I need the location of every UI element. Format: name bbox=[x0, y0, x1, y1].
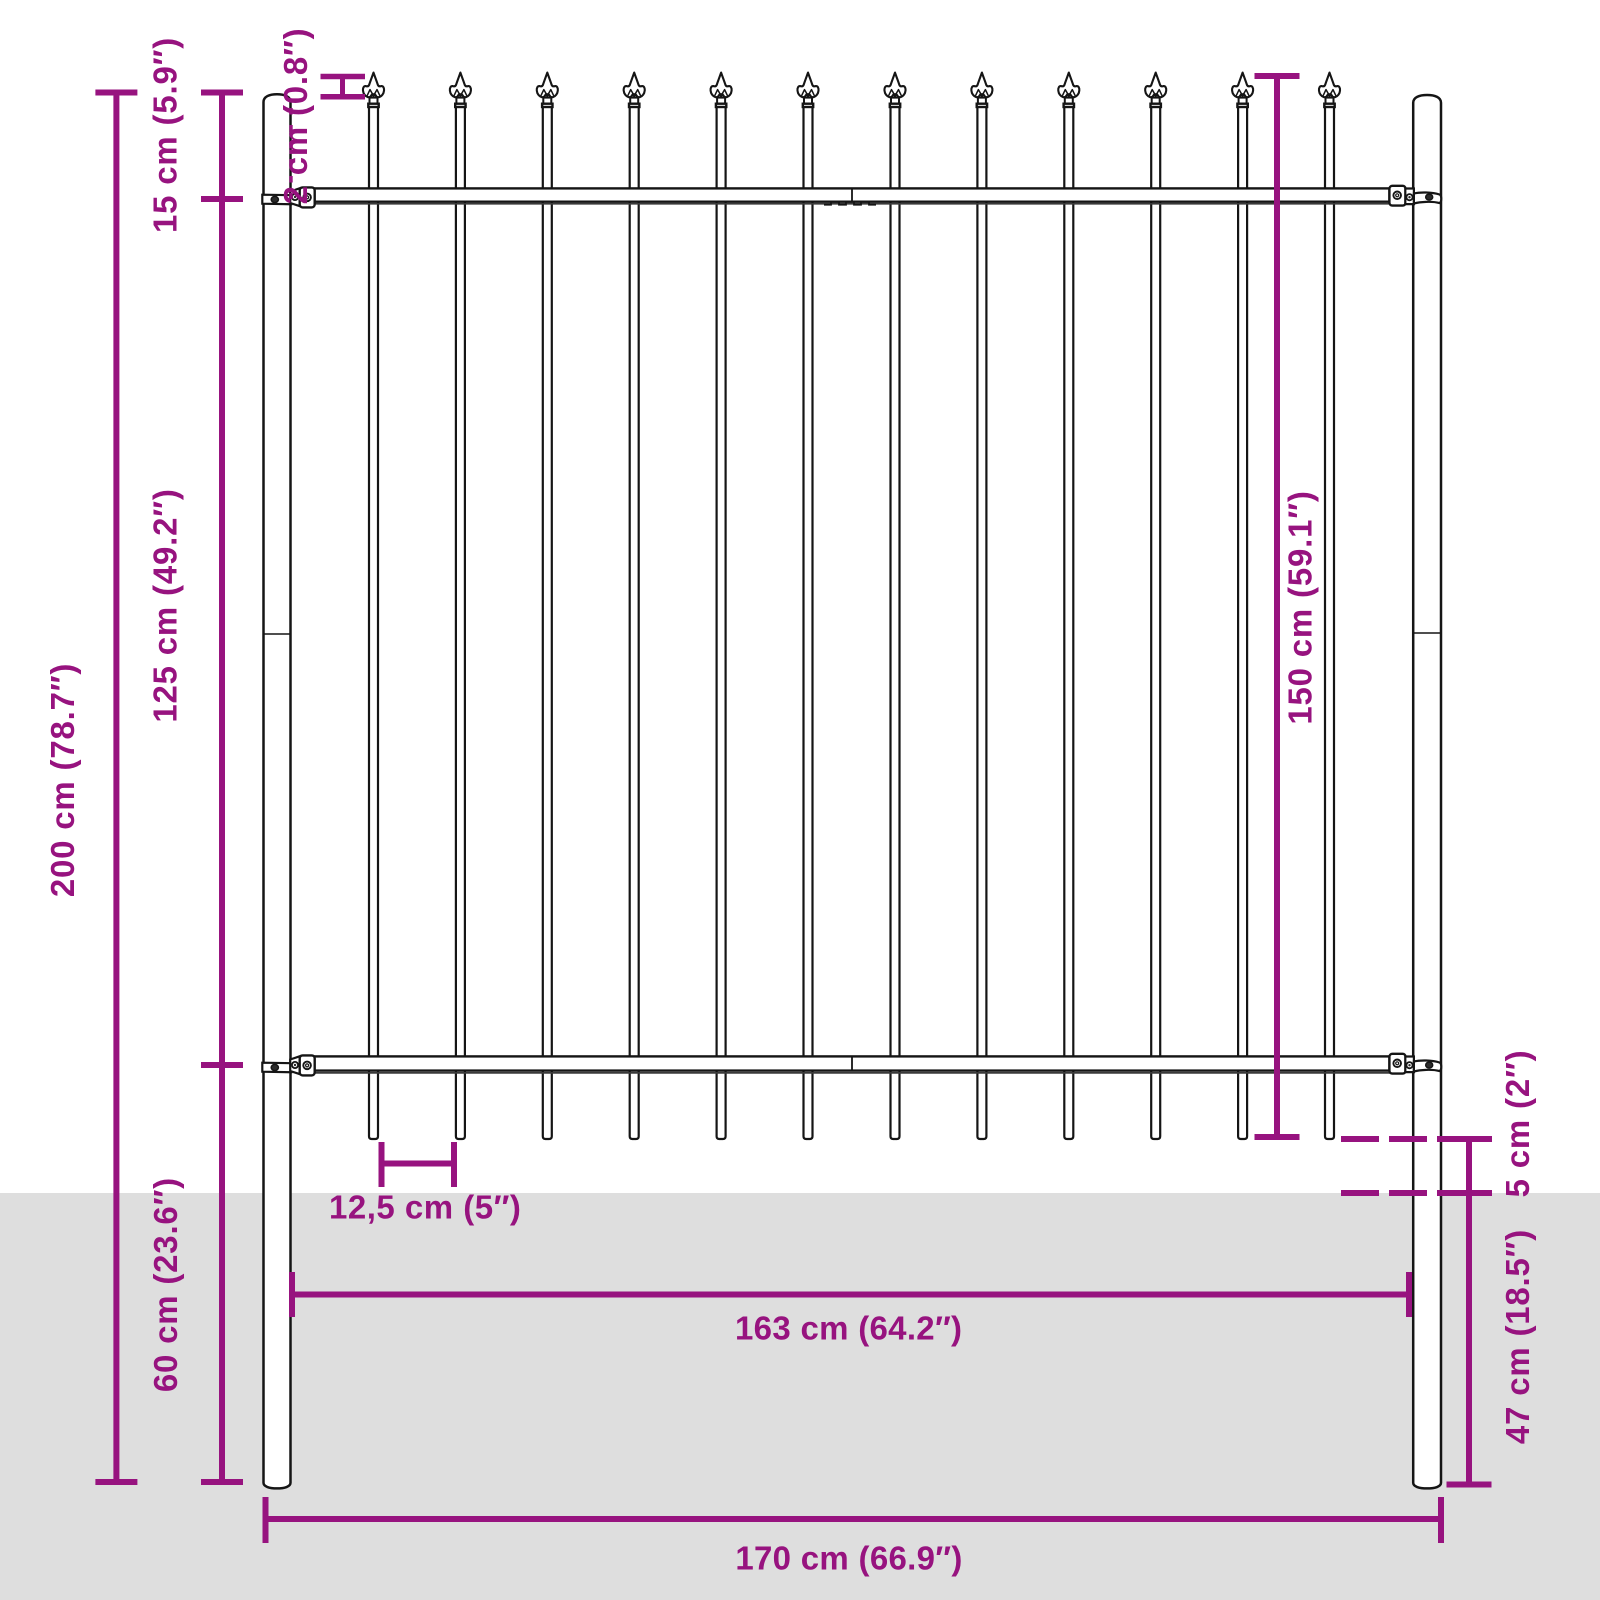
svg-text:163 cm (64.2″): 163 cm (64.2″) bbox=[735, 1310, 962, 1347]
svg-text:125 cm (49.2″): 125 cm (49.2″) bbox=[147, 488, 184, 722]
svg-text:5 cm (2″): 5 cm (2″) bbox=[1499, 1050, 1536, 1198]
svg-text:47 cm (18.5″): 47 cm (18.5″) bbox=[1499, 1229, 1536, 1444]
svg-text:12,5 cm (5″): 12,5 cm (5″) bbox=[329, 1189, 521, 1226]
svg-text:150 cm (59.1″): 150 cm (59.1″) bbox=[1282, 490, 1319, 724]
svg-text:2 cm (0.8″): 2 cm (0.8″) bbox=[277, 28, 314, 205]
svg-text:60 cm (23.6″): 60 cm (23.6″) bbox=[147, 1177, 184, 1392]
svg-text:15 cm (5.9″): 15 cm (5.9″) bbox=[147, 37, 184, 233]
svg-text:170 cm (66.9″): 170 cm (66.9″) bbox=[735, 1540, 962, 1577]
svg-text:200 cm (78.7″): 200 cm (78.7″) bbox=[44, 663, 81, 897]
